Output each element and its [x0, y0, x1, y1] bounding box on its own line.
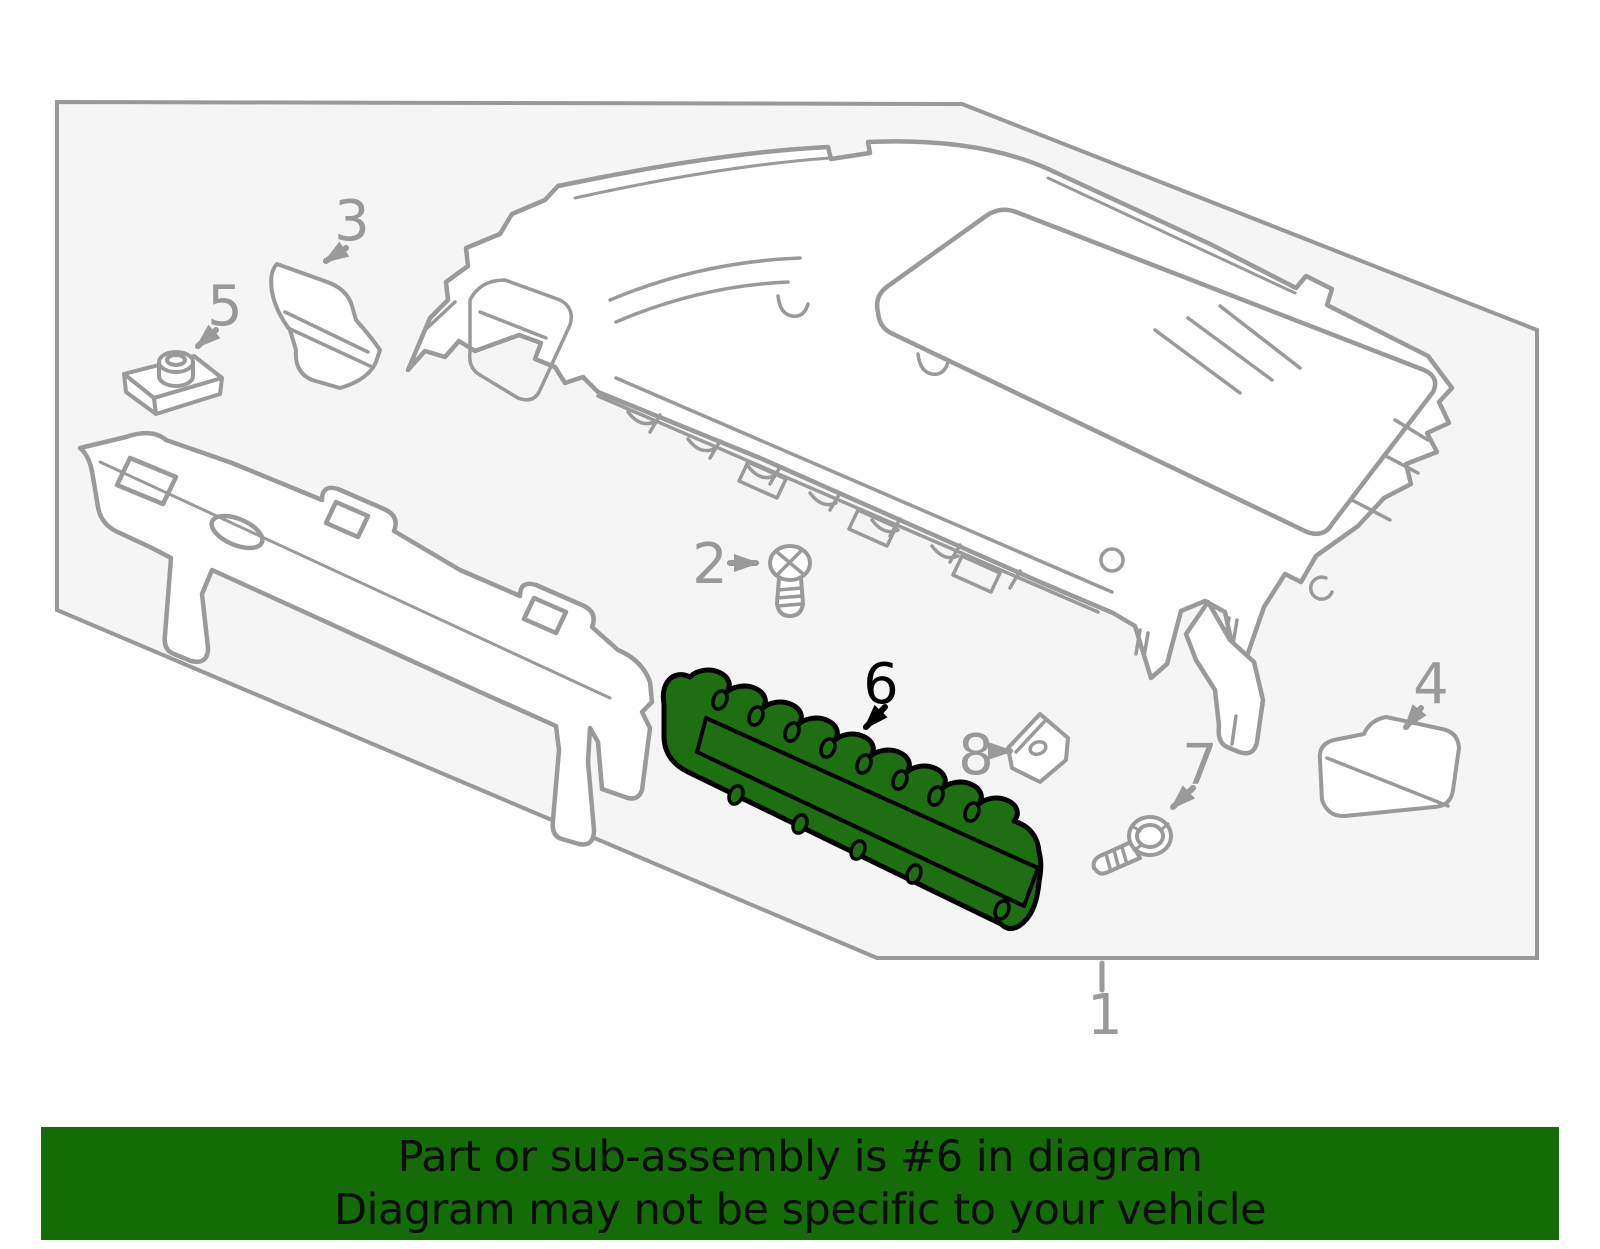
banner-line-2: Diagram may not be specific to your vehi… [334, 1184, 1266, 1237]
parts-diagram-page: 1 2 3 4 5 6 7 8 Part or sub-assembly is … [0, 0, 1600, 1249]
callout-label-6: 6 [863, 652, 899, 717]
parts-diagram-image: 1 2 3 4 5 6 7 8 [0, 0, 1600, 1249]
callout-label-2: 2 [692, 532, 728, 597]
banner-line-1: Part or sub-assembly is #6 in diagram [398, 1131, 1203, 1184]
callout-label-7: 7 [1182, 733, 1218, 798]
callout-label-4: 4 [1413, 652, 1449, 717]
highlight-disclaimer-banner: Part or sub-assembly is #6 in diagram Di… [41, 1127, 1559, 1240]
callout-label-8: 8 [958, 723, 994, 788]
callout-label-1: 1 [1087, 983, 1123, 1048]
callout-label-3: 3 [334, 189, 370, 254]
callout-label-5: 5 [207, 274, 243, 339]
